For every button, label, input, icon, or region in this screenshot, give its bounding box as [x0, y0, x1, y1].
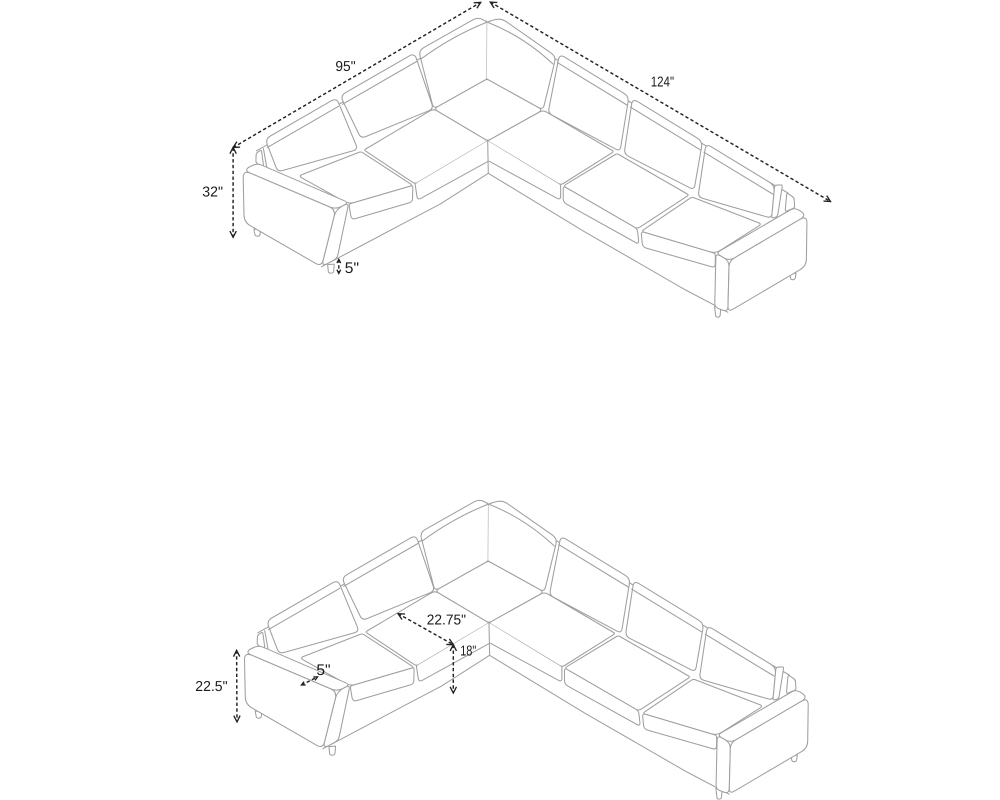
svg-text:95": 95": [335, 59, 355, 75]
svg-text:5": 5": [345, 260, 359, 277]
svg-text:22.75": 22.75": [427, 613, 466, 629]
svg-text:124": 124": [651, 75, 674, 91]
svg-text:5": 5": [316, 662, 330, 679]
svg-text:18": 18": [460, 644, 476, 660]
svg-text:22.5": 22.5": [195, 679, 227, 695]
svg-text:32": 32": [202, 185, 223, 201]
